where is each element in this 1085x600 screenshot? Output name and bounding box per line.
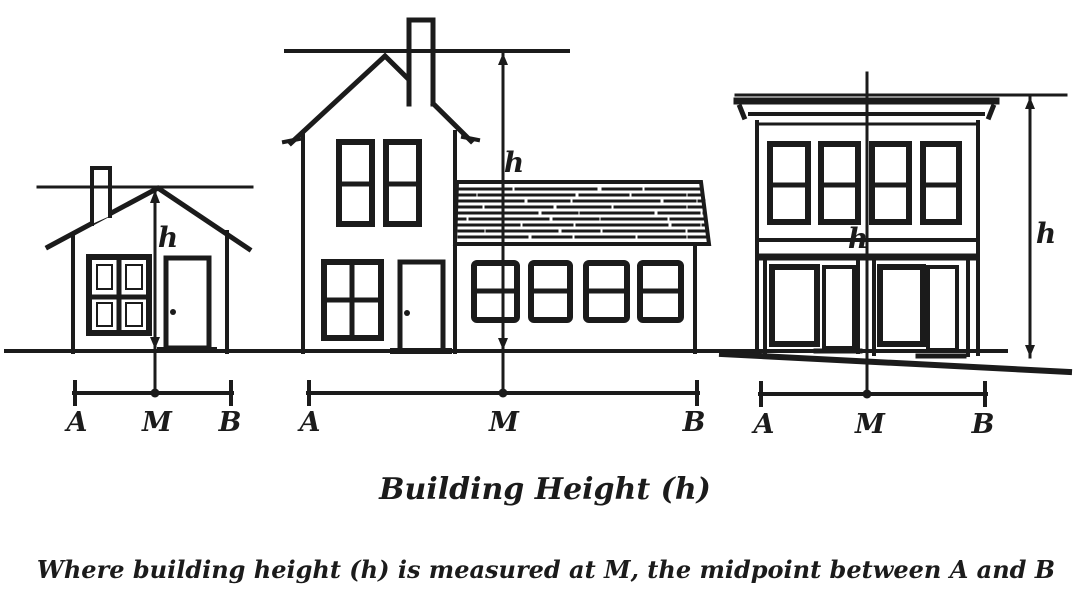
- door: [400, 262, 443, 351]
- cornice-end: [740, 107, 744, 117]
- label-b: B: [682, 407, 706, 438]
- eave-flick: [463, 137, 478, 140]
- door-knob: [170, 309, 176, 315]
- display-window: [880, 267, 923, 344]
- window-pane: [97, 303, 112, 326]
- label-a: A: [751, 409, 775, 440]
- arrow-up: [1025, 97, 1035, 109]
- chimney: [92, 168, 110, 224]
- arrow-up: [498, 53, 508, 65]
- arrow-down: [498, 338, 508, 350]
- figure-caption: Building Height (h): [378, 472, 711, 507]
- figure-note: Where building height (h) is measured at…: [37, 555, 1055, 584]
- chimney: [409, 20, 433, 104]
- left-measurement: h: [38, 187, 252, 393]
- height-label: h: [504, 146, 524, 179]
- midpoint-dot: [151, 389, 160, 398]
- label-m: M: [488, 407, 520, 438]
- small-house: [48, 168, 249, 352]
- door: [166, 258, 209, 348]
- ground: [6, 351, 1069, 372]
- door-knob: [404, 310, 410, 316]
- storefront-door: [824, 267, 854, 348]
- height-label: h: [158, 221, 178, 254]
- gable-roof: [291, 56, 471, 143]
- diagram-svg: h: [0, 0, 1085, 600]
- window-pane: [97, 265, 112, 289]
- label-a: A: [64, 407, 88, 438]
- cornice-end: [989, 107, 993, 117]
- eave-flick: [284, 139, 299, 142]
- storefront-door: [928, 267, 957, 350]
- height-label: h: [1036, 217, 1056, 250]
- dimension-line-right: A M B: [751, 383, 995, 440]
- grade-slope-line: [722, 354, 1069, 372]
- dimension-line-middle: A M B: [297, 382, 706, 438]
- gable-roof: [48, 188, 249, 249]
- two-story-house: [284, 20, 478, 352]
- window-pane: [126, 303, 142, 326]
- midpoint-dot: [863, 390, 872, 399]
- midpoint-dot: [499, 389, 508, 398]
- display-window: [772, 267, 817, 344]
- height-label-mid: h: [848, 222, 868, 255]
- arrow-down: [1025, 345, 1035, 357]
- label-m: M: [141, 407, 173, 438]
- window-pane: [126, 265, 142, 289]
- label-b: B: [971, 409, 995, 440]
- label-m: M: [854, 409, 886, 440]
- label-a: A: [297, 407, 321, 438]
- dimension-line-left: A M B: [64, 382, 242, 438]
- label-b: B: [218, 407, 242, 438]
- building-height-diagram: h: [0, 0, 1085, 600]
- roof-hatching: [459, 189, 708, 237]
- one-story-addition: [455, 182, 709, 352]
